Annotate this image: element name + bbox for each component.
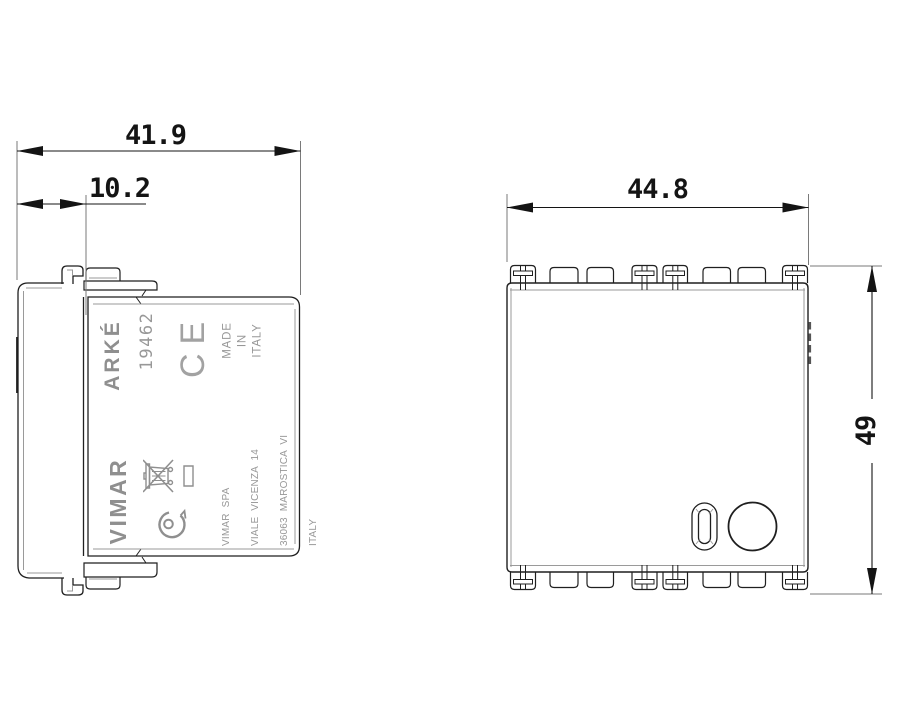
front-bottom-tabs xyxy=(511,565,808,590)
dim-front-height: 49 xyxy=(849,399,885,463)
front-view xyxy=(507,266,810,590)
dim-back-depth: 10.2 xyxy=(67,175,172,202)
dimensional-drawing: 41.9 10.2 44.8 49 ARKÉ 19462 CE MADE IN … xyxy=(0,0,900,720)
side-bottom-block xyxy=(84,563,157,577)
side-top-block-step xyxy=(142,290,157,296)
front-led-slot xyxy=(692,503,717,550)
brand-logo-arke: ARKÉ xyxy=(100,313,126,397)
address-line-1: VIMAR SPA xyxy=(222,430,232,546)
side-plate-step-top xyxy=(136,297,141,304)
side-plate-step-bottom xyxy=(136,549,141,556)
weee-icon xyxy=(143,456,203,496)
made-in-line-1: MADE xyxy=(221,313,236,369)
front-top-tabs xyxy=(511,266,808,291)
side-top-tab xyxy=(86,268,120,281)
brand-logo-vimar: VIMAR xyxy=(105,456,131,546)
dim-total-depth: 41.9 xyxy=(103,122,208,149)
made-in-italy: MADE IN ITALY xyxy=(221,313,266,369)
front-inner-lines xyxy=(510,288,805,567)
address-line-2: VIALE VICENZA 14 xyxy=(251,430,261,546)
made-in-line-3: ITALY xyxy=(251,313,266,369)
side-top-block xyxy=(84,281,157,290)
ce-mark: CE xyxy=(172,314,214,378)
imq-icon xyxy=(154,504,190,544)
address-line-3: 36063 MAROSTICA VI xyxy=(280,430,290,546)
dim-front-width: 44.8 xyxy=(600,176,715,203)
model-number: 19462 xyxy=(137,309,157,373)
side-back-housing xyxy=(18,283,64,578)
drawing-linework xyxy=(0,0,900,720)
manufacturer-address: VIMAR SPA VIALE VICENZA 14 36063 MAROSTI… xyxy=(203,430,249,546)
address-line-4: ITALY xyxy=(309,430,319,546)
made-in-line-2: IN xyxy=(236,313,251,369)
side-bottom-block-step xyxy=(142,557,157,563)
front-button xyxy=(729,503,777,551)
dim-total-depth-lines xyxy=(17,141,301,295)
front-body xyxy=(507,283,808,572)
